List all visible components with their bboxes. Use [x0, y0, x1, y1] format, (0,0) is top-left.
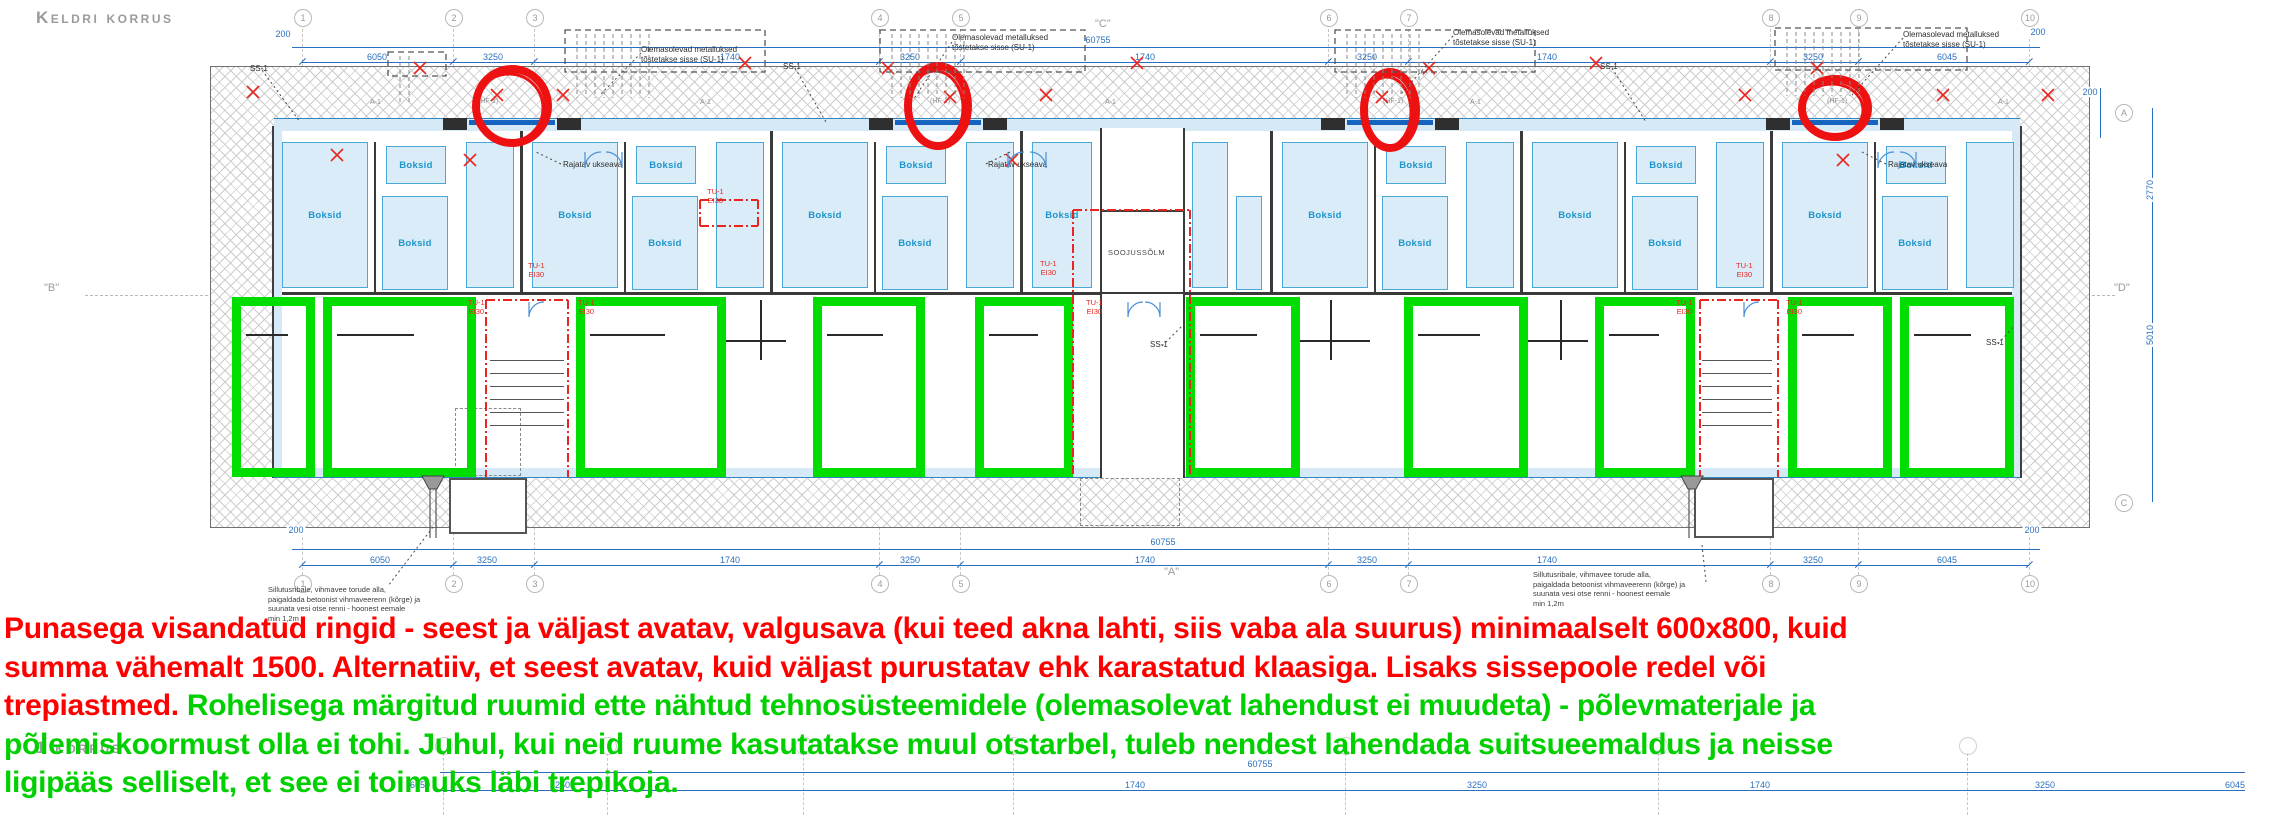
- dimension-label: 1740: [1133, 52, 1157, 62]
- boksid-label: Boksid: [1898, 238, 1931, 249]
- fire-door-label: TU-1EI30: [578, 299, 595, 316]
- grid-bubble: 5: [952, 9, 970, 27]
- stair-tread: [1702, 412, 1772, 413]
- su1-note: Olemasolevad metalluksedtõstetakse sisse…: [952, 33, 1048, 53]
- fire-door-label: TU-1EI30: [1040, 260, 1057, 277]
- room-partition-stub: [590, 334, 665, 336]
- room-partition-stub: [1300, 340, 1370, 342]
- section-marker: "A": [1164, 566, 1179, 578]
- dimension-label: 3250: [898, 52, 922, 62]
- room-partition-stub: [1609, 334, 1659, 336]
- fire-door-label: TU-1EI30: [1736, 262, 1753, 279]
- dimension-label: 200: [273, 29, 292, 39]
- dimension-line-vertical: [2152, 108, 2153, 502]
- grid-bubble: 7: [1400, 575, 1418, 593]
- grid-bubble: 8: [1762, 9, 1780, 27]
- room-partition-stub: [989, 334, 1038, 336]
- boksid-label: Boksid: [399, 160, 432, 171]
- dimension-label: 1740: [1133, 555, 1157, 565]
- ss1-label: SS-1: [1150, 340, 1168, 350]
- boksid-room: Boksid: [882, 196, 948, 290]
- window: [895, 120, 981, 125]
- dimension-label: 3250: [898, 555, 922, 565]
- bay-wall: [770, 128, 773, 295]
- stair-tread: [1702, 425, 1772, 426]
- dimension-line-vertical: [2100, 88, 2101, 138]
- grid-bubble: 10: [2021, 9, 2039, 27]
- boksid-label: Boksid: [648, 238, 681, 249]
- ss1-label: SS-1: [1986, 338, 2004, 348]
- note-line: Punasega visandatud ringid - seest ja vä…: [4, 610, 1847, 649]
- lintel-block: [1435, 118, 1459, 130]
- room-partition-stub: [337, 334, 414, 336]
- section-marker: "C": [1095, 18, 1111, 30]
- blueprint-screenshot: { "title": "Keldri korrus", "floor1_titl…: [0, 0, 2287, 815]
- dimension-line: [292, 549, 2040, 550]
- drain-note: Sillutusribale, vihmavee torude alla,pai…: [1533, 570, 1685, 608]
- boksid-room: Boksid: [1386, 146, 1446, 184]
- grid-bubble: 10: [2021, 575, 2039, 593]
- boksid-room: Boksid: [1636, 146, 1696, 184]
- grid-bubble-letter: A: [2115, 104, 2133, 122]
- room-partition-stub: [1418, 334, 1480, 336]
- dimension-label: 200: [2080, 87, 2099, 97]
- boksid-label: Boksid: [898, 238, 931, 249]
- boksid-room: Boksid: [386, 146, 446, 184]
- dimension-label: 3250: [1801, 52, 1825, 62]
- tech-room-green: [232, 297, 315, 477]
- stair-tread: [1702, 360, 1772, 361]
- partition-wall: [374, 142, 376, 292]
- dimension-label: 3250: [481, 52, 505, 62]
- grid-bubble: 2: [445, 9, 463, 27]
- boksid-label: Boksid: [308, 210, 341, 221]
- hf1-label: (HF-1): [1383, 98, 1403, 105]
- boksid-label: Boksid: [1045, 210, 1078, 221]
- ss1-label: SS-1: [250, 64, 268, 74]
- stair-tread: [490, 373, 564, 374]
- tech-room-green: [975, 297, 1073, 477]
- lintel-block: [557, 118, 581, 130]
- tech-room-green: [323, 297, 476, 477]
- su1-note: Olemasolevad metalluksedtõstetakse sisse…: [641, 45, 737, 65]
- stair-tread: [490, 399, 564, 400]
- grid-bubble: 7: [1400, 9, 1418, 27]
- boksid-label: Boksid: [1808, 210, 1841, 221]
- plan-title: Keldri korrus: [36, 8, 174, 28]
- exit-stoop: [1694, 478, 1774, 538]
- stair-tread: [1702, 386, 1772, 387]
- tech-room-green: [1186, 297, 1300, 477]
- exit-stoop: [1080, 478, 1180, 526]
- red-note-text: summa vähemalt 1500. Alternatiiv, et see…: [4, 651, 1766, 684]
- note-line: summa vähemalt 1500. Alternatiiv, et see…: [4, 649, 1847, 688]
- grid-bubble: 9: [1850, 9, 1868, 27]
- grid-bubble: 6: [1320, 575, 1338, 593]
- rajatav-ukseava-label: Rajatav ukseava: [988, 160, 1047, 170]
- bay-wall: [1770, 128, 1773, 295]
- su1-note: Olemasolevad metalluksedtõstetakse sisse…: [1453, 28, 1549, 48]
- boksid-label: Boksid: [899, 160, 932, 171]
- lintel-block: [1321, 118, 1345, 130]
- dimension-label: 3250: [1355, 52, 1379, 62]
- room-partition-stub: [1330, 300, 1332, 360]
- boksid-room: Boksid: [1282, 142, 1368, 288]
- dimension-label: 3250: [475, 555, 499, 565]
- dimension-label: 6050: [368, 555, 392, 565]
- note-line: ligipääs selliselt, et see ei toimuks lä…: [4, 764, 1847, 803]
- section-marker: "B": [44, 282, 59, 294]
- boksid-label: Boksid: [398, 238, 431, 249]
- green-note-text: põlemiskoormust olla ei tohi. Juhul, kui…: [4, 728, 1833, 761]
- room-partition-stub: [760, 300, 762, 360]
- red-note-text: Punasega visandatud ringid - seest ja vä…: [4, 612, 1847, 645]
- ss1-label: SS-1: [1600, 62, 1618, 72]
- bay-wall: [520, 128, 523, 295]
- boksid-room: [1966, 142, 2014, 288]
- grid-bubble: 2: [445, 575, 463, 593]
- fire-door-label: TU-1EI30: [528, 262, 545, 279]
- stair-tread: [1702, 399, 1772, 400]
- lintel-block: [869, 118, 893, 130]
- green-note-text: ligipääs selliselt, et see ei toimuks lä…: [4, 766, 678, 799]
- boksid-room: [466, 142, 514, 288]
- dimension-label: 6045: [1935, 555, 1959, 565]
- tech-room-green: [1595, 297, 1695, 477]
- stair-tread: [490, 386, 564, 387]
- boksid-label: Boksid: [1308, 210, 1341, 221]
- boksid-room: [1192, 142, 1228, 288]
- dimension-line: [292, 47, 2040, 48]
- stair-tread: [1702, 373, 1772, 374]
- dimension-label: 1740: [718, 555, 742, 565]
- dimension-label: 6050: [365, 52, 389, 62]
- dimension-label: 2770: [2145, 178, 2155, 202]
- boksid-room: Boksid: [1632, 196, 1698, 290]
- stair-tread: [490, 360, 564, 361]
- window: [1792, 120, 1878, 125]
- grid-bubble: 6: [1320, 9, 1338, 27]
- tech-room-green: [1788, 297, 1892, 477]
- stair-tread: [490, 412, 564, 413]
- a1-label: A-1: [370, 99, 381, 106]
- boksid-room: Boksid: [632, 196, 698, 290]
- ss1-label: SS-1: [783, 62, 801, 72]
- bay-wall: [1520, 128, 1523, 295]
- hf1-label: (HF-1): [930, 98, 950, 105]
- note-line: põlemiskoormust olla ei tohi. Juhul, kui…: [4, 726, 1847, 765]
- fire-door-label: TU-1EI30: [1676, 299, 1693, 316]
- a1-label: A-1: [1105, 99, 1116, 106]
- grid-bubble: 4: [871, 9, 889, 27]
- room-partition-stub: [1802, 334, 1854, 336]
- section-marker: "D": [2114, 282, 2130, 294]
- partition-wall: [874, 142, 876, 292]
- boksid-label: Boksid: [1649, 160, 1682, 171]
- window: [1347, 120, 1433, 125]
- grid-bubble-letter: C: [2115, 494, 2133, 512]
- a1-label: A-1: [1470, 99, 1481, 106]
- boksid-label: Boksid: [1648, 238, 1681, 249]
- hf1-label: (HF-1): [478, 98, 498, 105]
- dimension-label: 1740: [1535, 555, 1559, 565]
- bay-wall: [1270, 128, 1273, 295]
- dimension-label: 1740: [1535, 52, 1559, 62]
- boksid-room: [716, 142, 764, 288]
- boksid-room: Boksid: [636, 146, 696, 184]
- grid-bubble: 1: [294, 9, 312, 27]
- room-partition-stub: [1528, 340, 1588, 342]
- grid-bubble: 8: [1762, 575, 1780, 593]
- note-line: trepiastmed. Rohelisega märgitud ruumid …: [4, 687, 1847, 726]
- bay-wall: [1020, 128, 1023, 295]
- dimension-label: 200: [2022, 525, 2041, 535]
- red-note-text: trepiastmed.: [4, 689, 187, 722]
- grid-bubble: 9: [1850, 575, 1868, 593]
- a1-label: A-1: [700, 99, 711, 106]
- rajatav-ukseava-label: Rajatav ukseava: [563, 160, 622, 170]
- boksid-room: [1466, 142, 1514, 288]
- boksid-room: Boksid: [782, 142, 868, 288]
- dimension-label: 200: [2028, 27, 2047, 37]
- boksid-room: Boksid: [1532, 142, 1618, 288]
- dimension-label: 3250: [1801, 555, 1825, 565]
- boksid-room: Boksid: [382, 196, 448, 290]
- green-note-text: Rohelisega märgitud ruumid ette nähtud t…: [187, 689, 1815, 722]
- room-partition-stub: [1200, 334, 1257, 336]
- grid-bubble: 3: [526, 575, 544, 593]
- room-partition-stub: [246, 334, 288, 336]
- boksid-room: Boksid: [1782, 142, 1868, 288]
- lintel-block: [1880, 118, 1904, 130]
- room-partition-stub: [1560, 300, 1562, 360]
- rajatav-ukseava-label: Rajatav ukseava: [1888, 160, 1947, 170]
- boksid-room: Boksid: [1382, 196, 1448, 290]
- grid-bubble: 3: [526, 9, 544, 27]
- window: [469, 120, 555, 125]
- partition-wall: [1874, 142, 1876, 292]
- dimension-label: 200: [286, 525, 305, 535]
- room-partition-stub: [827, 334, 883, 336]
- lintel-block: [983, 118, 1007, 130]
- su1-note: Olemasolevad metalluksedtõstetakse sisse…: [1903, 30, 1999, 50]
- exit-stoop: [449, 478, 527, 534]
- boksid-label: Boksid: [649, 160, 682, 171]
- dimension-label: 3250: [1355, 555, 1379, 565]
- tech-room-green: [576, 297, 726, 477]
- stair-tread: [490, 425, 564, 426]
- boksid-label: Boksid: [1558, 210, 1591, 221]
- tech-room-green: [1404, 297, 1528, 477]
- boksid-label: Boksid: [558, 210, 591, 221]
- dimension-label: 60755: [1083, 35, 1112, 45]
- dimension-label: 6045: [1935, 52, 1959, 62]
- boksid-label: Boksid: [808, 210, 841, 221]
- boksid-label: Boksid: [1399, 160, 1432, 171]
- boksid-room: Boksid: [886, 146, 946, 184]
- fire-door-label: TU-1EI30: [1086, 299, 1103, 316]
- partition-wall: [1624, 142, 1626, 292]
- boksid-label: Boksid: [1398, 238, 1431, 249]
- hf1-label: (HF-1): [1827, 98, 1847, 105]
- central-corridor: [1100, 128, 1185, 478]
- dimension-label: 5010: [2145, 323, 2155, 347]
- lintel-block: [443, 118, 467, 130]
- boksid-room: Boksid: [282, 142, 368, 288]
- dimension-label: 60755: [1148, 537, 1177, 547]
- grid-bubble: 5: [952, 575, 970, 593]
- fire-door-label: TU-1EI30: [1786, 299, 1803, 316]
- tech-room-green: [1900, 297, 2014, 477]
- partition-wall: [1374, 142, 1376, 292]
- tech-room-green: [813, 297, 925, 477]
- lintel-block: [1766, 118, 1790, 130]
- room-partition-stub: [1914, 334, 1971, 336]
- soojussolm-label: SOOJUSSÕLM: [1108, 248, 1165, 257]
- fire-door-label: TU-1EI30: [468, 299, 485, 316]
- room-partition-stub: [726, 340, 786, 342]
- partition-wall: [624, 142, 626, 292]
- boksid-room: [1236, 196, 1262, 290]
- fire-door-label: TU-1EI30: [707, 188, 724, 205]
- boksid-room: Boksid: [1882, 196, 1948, 290]
- a1-label: A-1: [1998, 99, 2009, 106]
- grid-bubble: 4: [871, 575, 889, 593]
- legend-annotation-text: Punasega visandatud ringid - seest ja vä…: [4, 610, 1847, 803]
